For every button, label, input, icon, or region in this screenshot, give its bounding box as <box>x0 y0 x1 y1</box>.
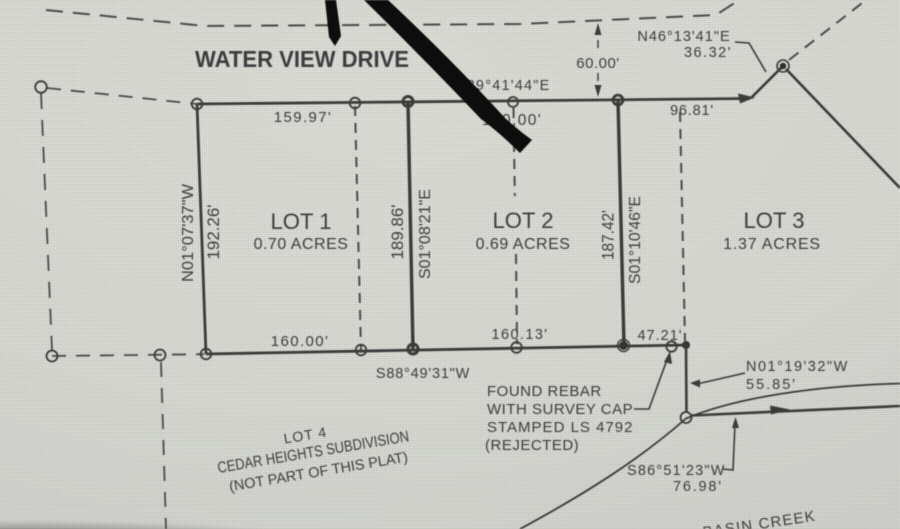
svg-text:189.86': 189.86' <box>389 205 407 260</box>
svg-text:LOT 1: LOT 1 <box>271 209 332 234</box>
svg-text:160.00': 160.00' <box>271 333 330 350</box>
svg-text:47.21': 47.21' <box>637 328 682 344</box>
svg-text:159.97': 159.97' <box>274 109 333 126</box>
svg-text:WITH SURVEY CAP: WITH SURVEY CAP <box>487 401 633 418</box>
svg-text:76.98': 76.98' <box>673 479 723 495</box>
svg-text:192.26': 192.26' <box>205 205 223 260</box>
svg-text:N01°19'32"W: N01°19'32"W <box>746 359 849 375</box>
svg-text:LOT 3: LOT 3 <box>744 208 805 233</box>
svg-text:0.70 ACRES: 0.70 ACRES <box>254 236 349 253</box>
svg-text:S01°10'46"E: S01°10'46"E <box>627 196 644 284</box>
svg-text:LOT 2: LOT 2 <box>493 208 554 233</box>
svg-text:96.81': 96.81' <box>670 103 714 119</box>
svg-text:STAMPED LS 4792: STAMPED LS 4792 <box>487 419 633 436</box>
svg-text:60.00': 60.00' <box>576 55 619 72</box>
svg-text:S01°08'21"E: S01°08'21"E <box>417 189 434 279</box>
svg-text:36.32': 36.32' <box>684 45 732 61</box>
svg-text:0.69 ACRES: 0.69 ACRES <box>476 236 571 253</box>
svg-text:N46°13'41"E: N46°13'41"E <box>637 29 730 45</box>
svg-text:WATER VIEW DRIVE: WATER VIEW DRIVE <box>195 46 409 72</box>
svg-text:N01°07'37"W: N01°07'37"W <box>180 183 197 282</box>
svg-text:BASIN CREEK: BASIN CREEK <box>702 508 817 529</box>
svg-text:S88°49'31"W: S88°49'31"W <box>376 366 470 382</box>
svg-text:160.13': 160.13' <box>492 327 549 343</box>
svg-text:1.37 ACRES: 1.37 ACRES <box>723 236 821 253</box>
svg-text:(REJECTED): (REJECTED) <box>485 437 579 454</box>
svg-text:55.85': 55.85' <box>746 377 797 393</box>
svg-text:187.42': 187.42' <box>600 210 618 260</box>
svg-text:S86°51'23"W: S86°51'23"W <box>627 463 726 479</box>
svg-text:FOUND REBAR: FOUND REBAR <box>487 383 602 400</box>
